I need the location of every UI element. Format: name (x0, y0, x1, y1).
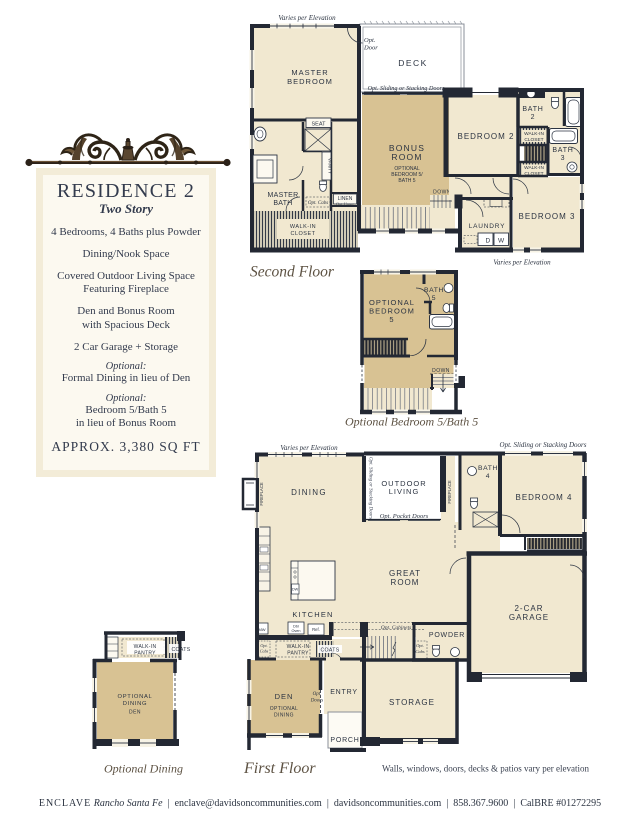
svg-text:BEDROOM 2: BEDROOM 2 (457, 132, 514, 141)
svg-text:PORCH: PORCH (330, 737, 359, 744)
svg-text:OPTIONAL: OPTIONAL (270, 706, 298, 712)
svg-text:Optional Bedroom 5/Bath 5: Optional Bedroom 5/Bath 5 (345, 415, 478, 429)
svg-text:D: D (486, 238, 491, 245)
svg-text:MW: MW (258, 627, 265, 632)
svg-text:BEDROOM: BEDROOM (287, 77, 333, 86)
svg-text:Varies per Elevation: Varies per Elevation (280, 444, 338, 452)
svg-text:SEAT: SEAT (312, 122, 327, 128)
svg-text:3: 3 (561, 155, 566, 162)
svg-text:WALK-IN: WALK-IN (290, 224, 316, 230)
svg-text:5: 5 (432, 295, 436, 302)
svg-text:Varies per Elevation: Varies per Elevation (278, 14, 336, 22)
svg-text:FIREPLACE: FIREPLACE (259, 482, 264, 505)
svg-text:BATH: BATH (522, 106, 543, 113)
svg-text:Cabs: Cabs (260, 649, 269, 654)
svg-text:KITCHEN: KITCHEN (292, 610, 333, 619)
svg-text:5: 5 (389, 315, 394, 324)
svg-text:STORAGE: STORAGE (389, 698, 435, 707)
svg-text:PANTRY: PANTRY (134, 651, 156, 657)
svg-text:FIREPLACE: FIREPLACE (447, 480, 452, 503)
svg-text:PANTRY: PANTRY (287, 651, 309, 657)
svg-text:4: 4 (486, 473, 490, 480)
svg-text:OPTIONAL: OPTIONAL (118, 694, 153, 700)
svg-text:BEDROOM 4: BEDROOM 4 (515, 493, 572, 502)
svg-text:BATH 5: BATH 5 (398, 178, 415, 184)
svg-text:Opt. Cabs: Opt. Cabs (308, 201, 328, 206)
svg-text:2: 2 (531, 114, 536, 121)
svg-text:Opt.: Opt. (313, 692, 322, 697)
svg-text:Door: Door (363, 45, 378, 52)
svg-text:Opt.: Opt. (416, 643, 424, 648)
svg-text:DW: DW (292, 588, 299, 592)
svg-text:Opt. Upper: Opt. Upper (336, 202, 355, 207)
svg-text:Opt.: Opt. (364, 37, 376, 44)
svg-text:WALK-IN: WALK-IN (524, 131, 544, 137)
svg-text:Oven: Oven (291, 629, 300, 633)
svg-text:Opt.: Opt. (260, 643, 267, 648)
svg-text:LIVING: LIVING (389, 487, 420, 496)
svg-text:Opt. Sliding or Stacking Doors: Opt. Sliding or Stacking Doors (368, 457, 373, 519)
svg-text:Varies per Elevation: Varies per Elevation (493, 259, 551, 267)
svg-text:DECK: DECK (398, 58, 428, 68)
svg-text:Opt. Sliding or Stacking Doors: Opt. Sliding or Stacking Doors (500, 441, 587, 449)
svg-text:DEN: DEN (129, 710, 141, 716)
svg-text:DINING: DINING (123, 701, 148, 707)
svg-text:VANITY: VANITY (328, 158, 333, 174)
svg-text:ENTRY: ENTRY (330, 689, 358, 696)
svg-text:Ref.: Ref. (312, 627, 320, 632)
svg-text:LAUNDRY: LAUNDRY (469, 223, 506, 230)
svg-text:Opt. Cabinets: Opt. Cabinets (381, 625, 412, 631)
svg-text:Walls, windows, doors, decks &: Walls, windows, doors, decks & patios va… (382, 764, 589, 774)
svg-text:ROOM: ROOM (391, 578, 420, 587)
svg-text:First Floor: First Floor (243, 760, 316, 777)
svg-text:WALK-IN: WALK-IN (134, 644, 157, 650)
svg-text:Optional Dining: Optional Dining (104, 762, 183, 776)
svg-text:DEN: DEN (275, 692, 294, 701)
svg-text:Cabs: Cabs (415, 649, 425, 654)
svg-text:Second Floor: Second Floor (250, 264, 335, 281)
svg-text:GREAT: GREAT (389, 569, 421, 578)
svg-text:Doors: Doors (310, 699, 324, 704)
svg-text:COATS: COATS (321, 648, 340, 654)
svg-text:GARAGE: GARAGE (509, 613, 549, 622)
svg-text:W: W (498, 238, 505, 245)
svg-text:ROOM: ROOM (391, 152, 422, 162)
svg-text:CLOSET: CLOSET (524, 137, 543, 143)
svg-text:WALK-IN: WALK-IN (287, 644, 310, 650)
svg-text:DINING: DINING (291, 488, 327, 497)
svg-text:POWDER: POWDER (429, 632, 465, 639)
svg-text:BATH: BATH (552, 147, 573, 154)
svg-text:Opt. Sliding or Stacking Doors: Opt. Sliding or Stacking Doors (368, 85, 445, 92)
svg-text:WALK-IN: WALK-IN (524, 165, 544, 171)
svg-text:Dbl: Dbl (293, 625, 299, 629)
svg-text:2-CAR: 2-CAR (514, 604, 543, 613)
svg-text:BEDROOM 3: BEDROOM 3 (518, 212, 575, 221)
svg-text:Opt. Pocket Doors: Opt. Pocket Doors (380, 513, 429, 520)
svg-text:DOWN: DOWN (432, 368, 450, 374)
svg-text:MASTER: MASTER (268, 192, 299, 199)
svg-text:DINING: DINING (274, 713, 294, 719)
svg-text:MASTER: MASTER (291, 68, 328, 77)
svg-text:BATH: BATH (478, 465, 498, 472)
svg-text:CLOSET: CLOSET (290, 231, 315, 237)
svg-text:DOWN: DOWN (433, 190, 451, 196)
